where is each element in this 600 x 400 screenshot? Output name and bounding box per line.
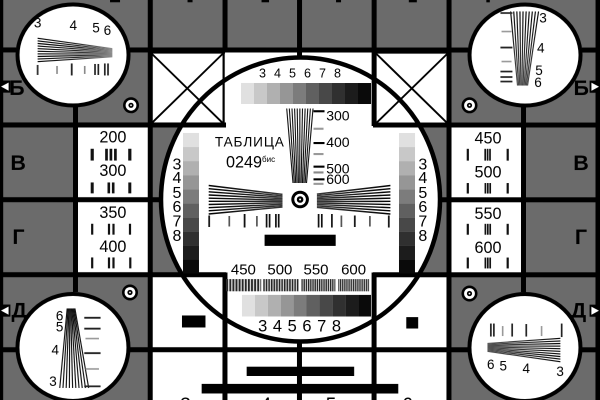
svg-text:6: 6 — [304, 67, 311, 81]
svg-text:Г: Г — [12, 225, 24, 249]
svg-text:4: 4 — [537, 41, 545, 56]
svg-text:350: 350 — [99, 204, 126, 222]
svg-text:4: 4 — [274, 66, 281, 80]
svg-text:400: 400 — [326, 134, 350, 150]
svg-text:3: 3 — [180, 395, 191, 400]
svg-text:6: 6 — [402, 395, 413, 400]
svg-text:3: 3 — [556, 364, 564, 379]
svg-text:Д: Д — [12, 298, 27, 322]
svg-text:4: 4 — [52, 342, 60, 357]
svg-text:6: 6 — [534, 75, 542, 90]
svg-text:5: 5 — [326, 395, 337, 400]
svg-text:8: 8 — [173, 228, 182, 245]
svg-text:Б: Б — [9, 76, 24, 100]
svg-text:8: 8 — [418, 228, 427, 245]
svg-text:4: 4 — [70, 18, 78, 33]
svg-text:Г: Г — [575, 225, 587, 249]
svg-text:6: 6 — [302, 318, 311, 336]
svg-text:5: 5 — [289, 66, 296, 80]
svg-text:600: 600 — [341, 261, 366, 278]
svg-text:5: 5 — [92, 20, 100, 35]
svg-text:5: 5 — [288, 318, 297, 336]
svg-text:600: 600 — [474, 239, 501, 257]
svg-text:5: 5 — [500, 359, 508, 374]
svg-text:550: 550 — [474, 205, 501, 223]
svg-text:7: 7 — [319, 67, 326, 81]
svg-text:Б: Б — [573, 76, 588, 100]
svg-text:500: 500 — [267, 261, 292, 278]
svg-text:В: В — [573, 151, 589, 175]
svg-text:ТАБЛИЦА: ТАБЛИЦА — [215, 134, 285, 149]
svg-text:6: 6 — [104, 23, 112, 38]
svg-text:300: 300 — [326, 107, 350, 123]
svg-text:8: 8 — [332, 318, 341, 336]
svg-text:4: 4 — [273, 318, 282, 336]
svg-text:450: 450 — [231, 261, 256, 278]
svg-text:3: 3 — [34, 16, 42, 31]
svg-text:8: 8 — [334, 67, 341, 81]
svg-text:7: 7 — [317, 318, 326, 336]
svg-text:В: В — [10, 151, 26, 175]
svg-text:3: 3 — [49, 374, 57, 389]
svg-text:450: 450 — [475, 129, 502, 147]
svg-text:4: 4 — [522, 361, 530, 376]
svg-text:500: 500 — [474, 163, 501, 181]
svg-text:200: 200 — [99, 128, 126, 146]
svg-text:Д: Д — [571, 299, 586, 323]
svg-text:3: 3 — [259, 66, 266, 80]
svg-text:3: 3 — [258, 318, 267, 336]
svg-text:3: 3 — [539, 11, 547, 26]
svg-text:400: 400 — [99, 238, 126, 256]
svg-text:550: 550 — [303, 261, 328, 278]
svg-text:600: 600 — [326, 171, 350, 187]
svg-text:5: 5 — [56, 320, 64, 335]
svg-text:6: 6 — [487, 357, 495, 372]
svg-text:4: 4 — [261, 395, 272, 400]
svg-text:300: 300 — [99, 162, 126, 180]
